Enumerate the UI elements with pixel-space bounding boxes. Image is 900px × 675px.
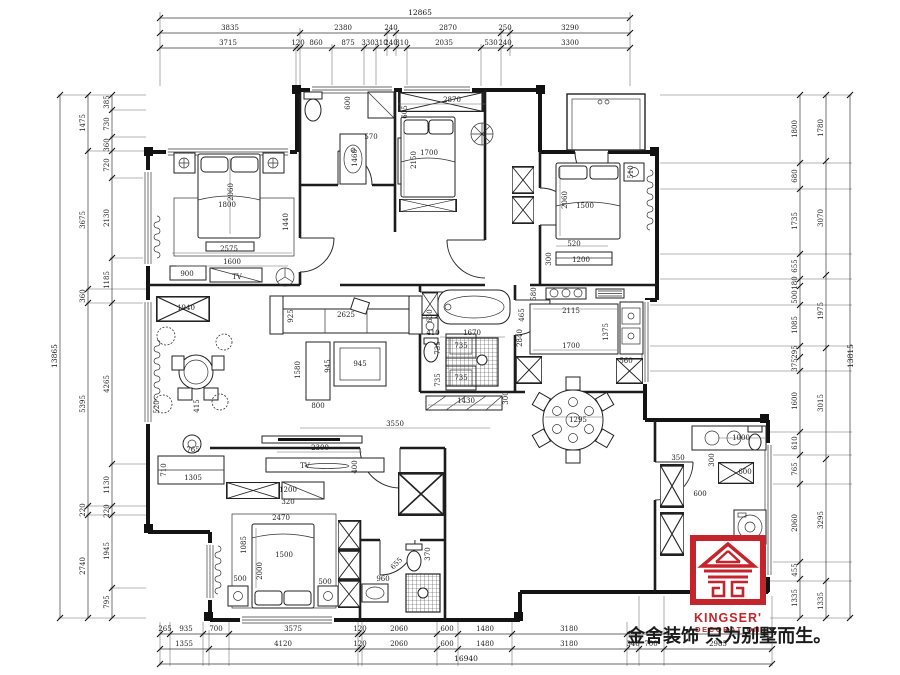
dim-label: 765 [186,446,199,454]
dim-label: 2840 [516,329,524,347]
plant [157,327,175,345]
tv-shelf [266,458,384,472]
dim-label: 700 [209,625,222,633]
washbasin [362,584,388,602]
dim-label: 735 [434,341,442,354]
dim-label: 720 [103,158,111,171]
dim-label: 180 [791,276,799,289]
dim-label: 945 [324,359,332,372]
dim-label: 1200 [279,486,297,494]
radiator-symbol [154,216,160,258]
dim-label: 570 [364,133,377,141]
dim-label: 220 [103,504,111,517]
dim-label: 13815 [846,344,855,368]
dim-label: 1580 [294,361,302,379]
balcony [567,94,645,150]
dim-label: 320 [281,498,294,506]
dim-label: 935 [179,625,192,633]
dim-label: 2740 [79,557,87,575]
dim-label: 1430 [457,397,475,405]
cooktop [546,288,586,299]
dim-label: TV [232,273,243,281]
dim-label: 240 [384,24,397,32]
dim-label: 610 [791,436,799,449]
ceiling-fan-icon [276,268,294,286]
dim-label: 1085 [240,536,248,554]
dim-label: 250 [498,24,511,32]
dim-label: 680 [791,169,799,182]
dim-label: 860 [309,39,322,47]
nightstand [228,586,248,606]
dim-label: 1335 [817,592,825,610]
dim-label: 13865 [50,344,59,368]
dim-label: 120 [353,625,366,633]
dim-label: 2300 [311,444,329,452]
kitchen [516,288,643,383]
dim-label: 795 [103,595,111,608]
dim-label: 735 [434,373,442,386]
dim-label: 410 [426,329,439,337]
dim-label: 2060 [561,191,569,209]
dim-label: 310 [395,39,408,47]
dim-label: TV [300,462,311,470]
dim-label: 465 [518,308,526,321]
dim-label: 2115 [562,307,580,315]
dim-label: 360 [103,138,111,151]
dim-label: 1375 [602,323,610,341]
dim-label: 875 [341,39,354,47]
dim-label: 2470 [272,514,290,522]
dim-label: 710 [160,463,168,476]
dim-label: 1945 [103,542,111,560]
dim-label: 1440 [282,213,290,231]
dim-label: 925 [287,309,295,322]
dim-label: 1355 [175,640,193,648]
dim-label: 2060 [390,625,408,633]
shower [368,92,394,118]
dim-label: 370 [424,547,432,560]
nightstand [318,586,338,606]
dim-label: 1200 [572,256,590,264]
vent [596,289,624,298]
dim-label: 300 [708,453,716,466]
dim-label: 1500 [275,551,293,559]
window [240,615,334,625]
wardrobe [399,93,482,112]
dim-label: 1700 [420,149,438,157]
dim-label: 1130 [103,476,111,494]
dim-label: 3675 [79,211,87,229]
dim-label: 1600 [791,392,799,410]
floor-plan-page: 12865 3835 2380 240 2870 250 3290 3715 1… [0,0,900,675]
dim-label: 2870 [443,96,461,104]
dim-label: 600 [693,490,706,498]
dim-label: 4120 [274,640,292,648]
radiator-symbol [647,170,653,230]
dim-label: 1185 [103,271,111,289]
dim-label: 3180 [560,625,578,633]
dim-label: 2625 [337,311,355,319]
dim-label: 3295 [817,511,825,529]
dim-label: 3715 [219,39,237,47]
slogan-text: 金舍装饰 只为别墅而生。 [626,625,831,647]
dim-label: 240 [498,39,511,47]
window [143,300,153,424]
dim-label: 415 [193,399,201,412]
dim-label: 3575 [284,625,302,633]
dim-label: 655 [791,259,799,272]
nightstand [174,153,195,173]
floor-plan-canvas: 12865 3835 2380 240 2870 250 3290 3715 1… [0,0,900,675]
dim-label: 2035 [435,39,453,47]
dim-label: 735 [454,374,467,382]
dim-label: 900 [180,270,193,278]
dim-label: 385 [103,95,111,108]
window [143,170,153,266]
dim-label: 1295 [569,416,587,424]
dim-label: 2130 [103,209,111,227]
dim-label: 560 [619,357,632,365]
dim-label: 1700 [562,342,580,350]
kingser-logo: KINGSER' DECORATION [693,538,763,634]
bathtub [438,290,510,324]
dim-label: 580 [530,287,538,300]
dim-label: 520 [153,400,161,413]
dim-label: 120 [353,640,366,648]
wardrobe [227,483,279,499]
dim-label: 1000 [732,434,750,442]
dim-label: 220 [79,503,87,516]
dim-label: 520 [567,240,580,248]
dim-label: 3290 [561,24,579,32]
dim-label: 1780 [817,119,825,137]
logo-wordmark: KINGSER' [694,611,762,625]
dim-label: 600 [440,640,453,648]
dim-label: 1600 [223,258,241,266]
toilet [406,544,422,571]
dim-label: 1500 [576,202,594,210]
dim-label: 655 [389,556,404,571]
dim-label: 360 [79,289,87,302]
sink-counter [620,302,643,354]
dim-label: 400 [351,460,359,473]
shower [406,574,440,612]
dim-label: 800 [311,402,324,410]
dim-label: 1085 [791,316,799,334]
dim-label: 375 [791,358,799,371]
dim-label: 630 [426,309,434,322]
dim-label: 300 [545,252,553,265]
dim-label: 5395 [79,395,87,413]
dim-label: 3015 [817,394,825,412]
dim-label: 300 [502,391,510,404]
dim-label: 2000 [256,562,264,580]
dim-label: 605 [401,105,409,118]
dim-label: 1480 [476,640,494,648]
dim-label: 350 [671,454,684,462]
dim-label: 3070 [817,209,825,227]
dim-label: 3550 [386,420,404,428]
hall-cabinet [399,473,444,514]
tv-wall [262,436,362,443]
dim-label: 2380 [334,24,352,32]
dim-label: 120 [291,39,304,47]
dim-label: 500 [318,578,331,586]
dim-label: 330 [361,39,374,47]
dim-label: 600 [440,625,453,633]
dim-label: 1735 [791,212,799,230]
dim-label: 3835 [221,24,239,32]
dim-label: 500 [791,290,799,303]
dim-label: 1670 [463,329,481,337]
dim-label: 510 [627,165,635,178]
dim-label: 2575 [220,245,238,253]
dim-label: 2060 [227,183,235,201]
dim-label: 4265 [103,375,111,393]
dim-label: 2060 [791,514,799,532]
dim-label: 2060 [390,640,408,648]
dim-label: 295 [791,345,799,358]
dim-label: 735 [454,342,467,350]
dim-label: 600 [738,468,751,476]
plant [216,334,232,350]
dim-label: 530 [484,39,497,47]
dim-label: 455 [791,563,799,576]
bed-bench [400,199,456,211]
toilet [304,92,322,121]
dim-label: 1800 [218,201,236,209]
dim-label: 3300 [561,39,579,47]
dim-label: 1480 [476,625,494,633]
dim-label: 3180 [560,640,578,648]
dim-label: 1335 [791,589,799,607]
dim-label: 765 [791,462,799,475]
dim-label: 2870 [439,24,457,32]
kingser-logo-glyph [693,538,763,602]
dim-label: 1460 [351,149,359,167]
radiator-symbol [215,546,221,594]
dim-label: 265 [158,625,171,633]
dim-label: 2150 [410,151,418,169]
dim-label: 500 [233,575,246,583]
nightstand [263,153,284,173]
dim-label: 1975 [817,302,825,320]
dim-label: 16940 [454,654,478,663]
dim-label: 1800 [791,120,799,138]
dim-label: 600 [344,96,352,109]
dim-label: 945 [353,360,366,368]
dim-label: 1475 [79,114,87,132]
dim-label: 1940 [177,304,195,312]
hall-closet [512,167,533,223]
chandelier-icon [471,123,493,145]
dim-label: 960 [376,575,389,583]
dim-label: 12865 [408,8,432,17]
window [205,543,215,600]
dim-label: 730 [103,117,111,130]
radiator-symbol [154,340,160,400]
dim-label: 1305 [184,474,202,482]
